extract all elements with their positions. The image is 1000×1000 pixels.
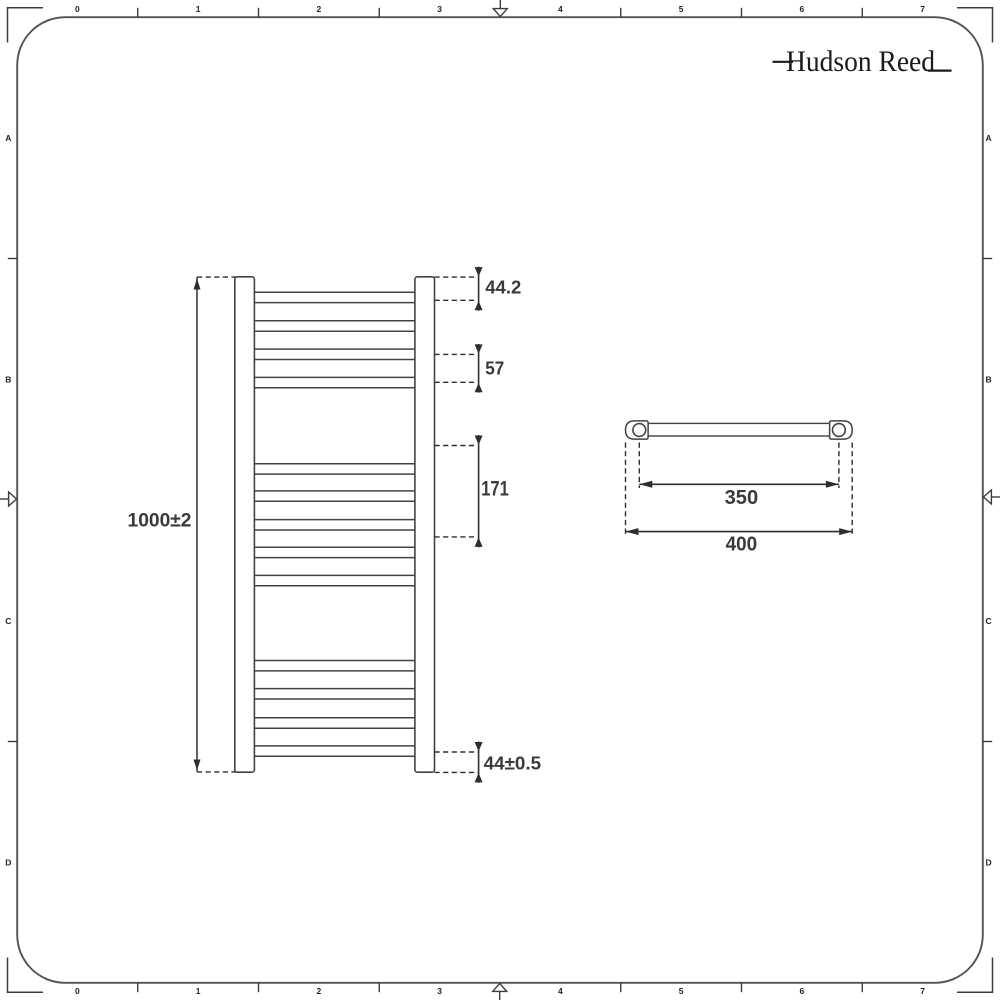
- svg-text:44±0.5: 44±0.5: [484, 752, 541, 773]
- svg-text:B: B: [5, 374, 11, 384]
- svg-text:6: 6: [800, 986, 805, 996]
- svg-text:1000±2: 1000±2: [128, 511, 192, 532]
- svg-text:350: 350: [725, 487, 759, 509]
- svg-text:44.2: 44.2: [485, 277, 521, 298]
- svg-text:D: D: [5, 857, 11, 867]
- svg-text:1: 1: [196, 986, 201, 996]
- svg-text:2: 2: [317, 4, 322, 14]
- svg-text:4: 4: [558, 4, 563, 14]
- svg-text:171: 171: [481, 477, 509, 501]
- svg-text:3: 3: [437, 986, 442, 996]
- svg-text:5: 5: [679, 4, 684, 14]
- svg-text:5: 5: [679, 986, 684, 996]
- svg-text:0: 0: [75, 986, 80, 996]
- svg-text:57: 57: [485, 358, 504, 379]
- svg-text:0: 0: [75, 4, 80, 14]
- svg-text:C: C: [986, 616, 992, 626]
- svg-text:400: 400: [726, 533, 758, 555]
- svg-text:C: C: [5, 616, 11, 626]
- svg-text:3: 3: [437, 4, 442, 14]
- svg-text:Hudson Reed: Hudson Reed: [786, 45, 935, 78]
- svg-text:D: D: [986, 857, 992, 867]
- svg-text:B: B: [986, 374, 992, 384]
- svg-text:A: A: [986, 133, 992, 143]
- svg-text:7: 7: [920, 4, 925, 14]
- svg-text:2: 2: [317, 986, 322, 996]
- svg-text:A: A: [5, 133, 11, 143]
- svg-text:6: 6: [800, 4, 805, 14]
- svg-text:1: 1: [196, 4, 201, 14]
- svg-text:4: 4: [558, 986, 563, 996]
- svg-text:7: 7: [920, 986, 925, 996]
